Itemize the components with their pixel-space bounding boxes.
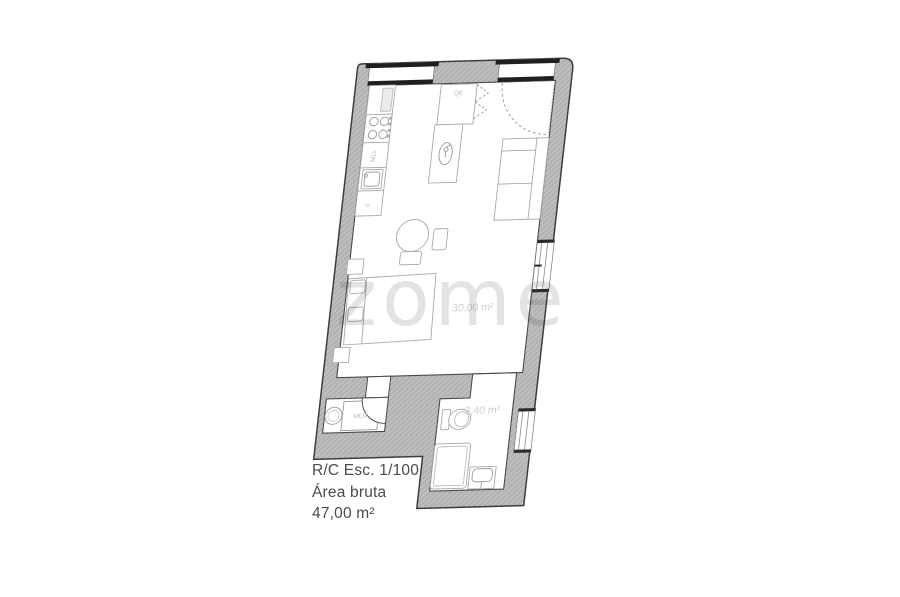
window-top-left	[364, 62, 439, 86]
fridge-label: F	[365, 203, 372, 207]
oven	[381, 88, 394, 111]
bed	[344, 273, 436, 345]
pillow	[350, 280, 366, 294]
washing-machine-label: MLR	[353, 413, 368, 420]
electrical-panel-label: QE	[453, 90, 464, 97]
main-room-area-label: 30,00 m²	[451, 301, 494, 314]
chair	[432, 229, 448, 250]
window-top-right	[493, 58, 559, 82]
sofa	[494, 138, 549, 221]
bathroom-area-label: 3,40 m²	[464, 404, 501, 417]
floorplan-page: MLL F QE	[0, 0, 900, 597]
nightstand	[332, 347, 350, 362]
pillow	[347, 307, 363, 322]
laundry-doorway	[365, 376, 390, 398]
caption-area-label: Área bruta	[312, 482, 419, 504]
dishwasher-label: MLL	[370, 149, 378, 162]
caption-scale: R/C Esc. 1/100	[312, 460, 419, 482]
nightstand	[346, 259, 364, 274]
caption-area-value: 47,00 m²	[312, 503, 419, 525]
floorplan-drawing: MLL F QE	[307, 58, 580, 518]
plan-caption: R/C Esc. 1/100 Área bruta 47,00 m²	[312, 460, 419, 525]
chair	[399, 251, 421, 265]
bathroom-sink	[468, 466, 496, 489]
shower	[430, 443, 471, 489]
